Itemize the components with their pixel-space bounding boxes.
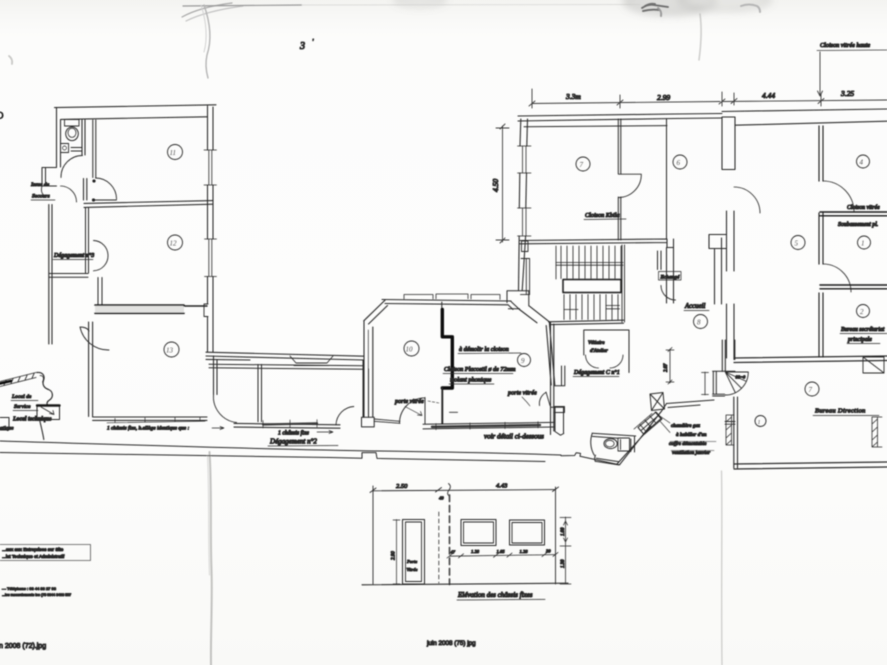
svg-text:...iat Technique et Administra: ...iat Technique et Administratif [2,554,65,559]
svg-text:1: 1 [861,240,865,248]
svg-text:3.25: 3.25 [840,89,854,98]
svg-text:chaudière gaz: chaudière gaz [671,423,700,429]
svg-text:voir détail ci-dessous: voir détail ci-dessous [484,433,544,441]
svg-text:Porte: Porte [406,559,417,564]
svg-text:Cloison Kbila: Cloison Kbila [585,212,620,219]
svg-text:1: 1 [758,420,761,426]
svg-text:isolant phonique: isolant phonique [450,377,492,384]
svg-text:2.99: 2.99 [657,93,670,102]
svg-text:juin 2008 (75) jpg: juin 2008 (75) jpg [426,640,476,647]
svg-text:7: 7 [809,386,813,394]
svg-text:Secours: Secours [32,194,50,200]
svg-text:1.28: 1.28 [471,549,480,554]
svg-text:Local de: Local de [11,394,32,400]
svg-text:Cloison vitrée: Cloison vitrée [847,205,880,211]
svg-text:1.00: 1.00 [561,527,566,536]
svg-text:13: 13 [166,347,174,355]
svg-text:1 châssis fixe, h.allège ident: 1 châssis fixe, h.allège identique que : [107,425,190,432]
svg-text:Bureau Direction: Bureau Direction [815,408,866,415]
svg-text:4.50: 4.50 [491,179,500,192]
svg-text:4.44: 4.44 [762,91,775,100]
svg-text:Vitrée: Vitrée [407,567,418,572]
svg-text:D: D [0,110,4,122]
svg-text:10: 10 [406,346,414,354]
svg-text:porte vitrée: porte vitrée [394,398,424,405]
svg-text:Dégagement C n°1: Dégagement C n°1 [573,369,620,376]
svg-text:3.3m: 3.3m [565,92,581,101]
svg-text:12: 12 [170,240,178,248]
svg-text:...rmatique: ...rmatique [0,426,14,432]
svg-text:Elévation des châssis fixes: Elévation des châssis fixes [457,591,533,599]
svg-text:Issue de: Issue de [30,182,50,188]
svg-text:...aux aux Entreprises sur Sit: ...aux aux Entreprises sur Site [2,547,64,552]
svg-text:Cloison Placostil ø de 72mm: Cloison Placostil ø de 72mm [444,366,516,373]
svg-text:40: 40 [439,496,444,501]
svg-text:11: 11 [170,149,176,157]
svg-text:Cloison vitrée haute: Cloison vitrée haute [820,42,870,49]
svg-text:4: 4 [860,159,864,167]
svg-text:7: 7 [580,161,584,169]
svg-text:Dégagement n°2: Dégagement n°2 [269,438,317,446]
svg-text:30: 30 [546,549,551,554]
svg-text:2.07: 2.07 [664,363,669,372]
svg-text:porte vitrée: porte vitrée [507,390,537,397]
svg-text:47: 47 [451,550,456,555]
svg-text:ventilation janvier: ventilation janvier [672,450,711,456]
svg-text:d'Atelier: d'Atelier [590,348,609,354]
svg-text:1.28: 1.28 [520,549,529,554]
svg-text:2.90: 2.90 [392,551,397,560]
svg-text:à démolir la cloison: à démolir la cloison [459,346,509,353]
svg-text:Soubassement pl.: Soubassement pl. [838,222,878,228]
svg-text:Bureau secrétariat: Bureau secrétariat [841,327,885,333]
svg-text:3: 3 [299,41,305,52]
svg-text:à habiller d'un: à habiller d'un [676,432,707,438]
svg-text:1.05: 1.05 [497,549,506,554]
svg-text:5: 5 [795,240,799,248]
svg-text:8: 8 [697,319,701,327]
svg-text:Echangé: Echangé [660,275,680,281]
svg-text:...les raccordements les (75 0: ...les raccordements les (75 0344 3408 5… [2,593,71,597]
svg-text:— Téléphone : 03 44 38 27 98: — Téléphone : 03 44 38 27 98 [2,586,57,591]
svg-text:1 châssis fixe: 1 châssis fixe [278,430,309,437]
svg-text:2.50: 2.50 [396,483,408,490]
svg-text:6: 6 [677,159,681,167]
svg-text:juin 2008 (72).jpg: juin 2008 (72).jpg [0,643,46,650]
svg-text:Service: Service [14,404,31,410]
svg-text:principale: principale [847,337,872,343]
svg-text:2: 2 [860,308,864,316]
svg-text:9: 9 [521,357,525,365]
svg-text:Vétiaire: Vétiaire [588,340,605,346]
svg-text:4.43: 4.43 [496,483,508,490]
svg-text:coffre démontable: coffre démontable [669,440,707,447]
svg-text:Accueil: Accueil [684,303,705,310]
svg-text:1.30: 1.30 [561,559,566,568]
svg-text:88=0: 88=0 [736,375,747,380]
svg-text:Local technique: Local technique [12,417,52,423]
